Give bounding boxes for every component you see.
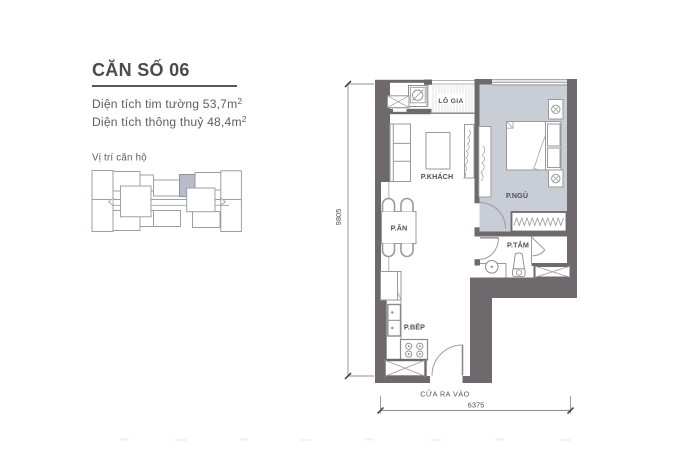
svg-text:Vị trí căn hộ: Vị trí căn hộ (92, 152, 147, 163)
svg-text:Diện tích thông thuỷ 48,4m2: Diện tích thông thuỷ 48,4m2 (92, 114, 247, 129)
svg-text:LÔ GIA: LÔ GIA (438, 96, 463, 105)
svg-text:P.NGỦ: P.NGỦ (506, 191, 528, 200)
svg-text:P.KHÁCH: P.KHÁCH (421, 172, 454, 181)
svg-text:CỬA RA VÀO: CỬA RA VÀO (420, 390, 470, 399)
svg-text:P.BẾP: P.BẾP (404, 322, 425, 332)
svg-text:P.TẮM: P.TẮM (507, 241, 529, 250)
svg-text:6375: 6375 (468, 401, 485, 410)
svg-text:9805: 9805 (334, 209, 343, 226)
svg-text:Diện tích tim tường 53,7m2: Diện tích tim tường 53,7m2 (92, 96, 242, 111)
svg-text:CĂN SỐ 06: CĂN SỐ 06 (92, 59, 190, 80)
svg-text:P.ĂN: P.ĂN (391, 224, 408, 233)
